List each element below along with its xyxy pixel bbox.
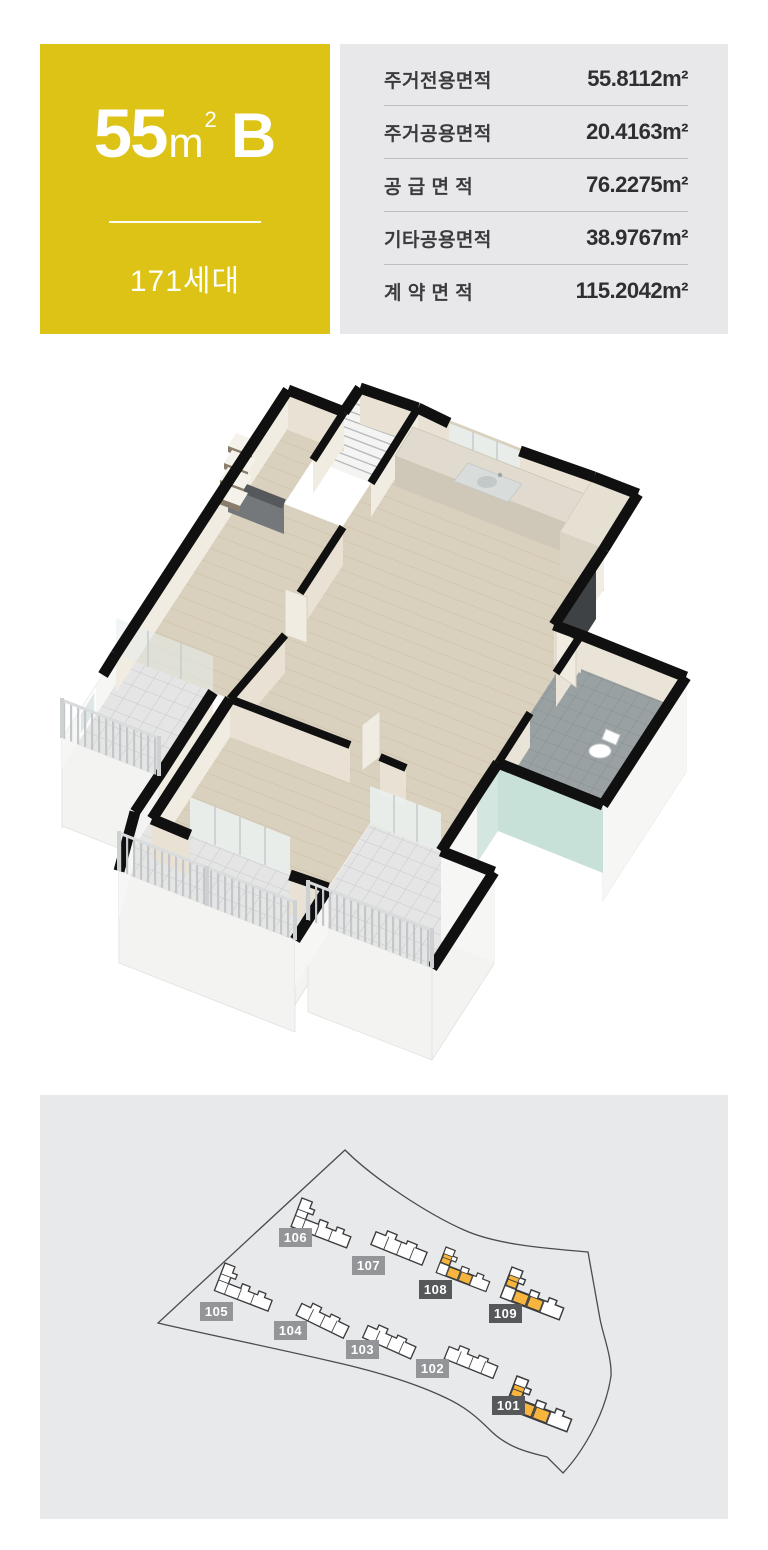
area-row-label: 주거공용면적: [384, 119, 492, 146]
area-row: 기타공용면적 38.9767m²: [384, 212, 688, 265]
building-label-102: 102: [416, 1359, 449, 1378]
area-row: 계 약 면 적 115.2042m²: [384, 265, 688, 317]
area-row-label: 주거전용면적: [384, 66, 492, 93]
area-table: 주거전용면적 55.8112m² 주거공용면적 20.4163m² 공 급 면 …: [340, 44, 728, 334]
unit-type-letter: B: [231, 101, 277, 171]
area-unit-sup: 2: [205, 107, 217, 132]
floor-plan-section: [0, 345, 768, 1090]
area-row-label: 계 약 면 적: [384, 278, 473, 305]
building-label-layer: 101102103104105106107108109: [40, 1095, 728, 1519]
area-unit: m: [169, 119, 204, 166]
area-row: 주거전용면적 55.8112m²: [384, 53, 688, 106]
badge-divider: [109, 221, 261, 223]
building-label-107: 107: [352, 1256, 385, 1275]
building-label-109: 109: [489, 1304, 522, 1323]
area-row-label: 공 급 면 적: [384, 172, 473, 199]
unit-header: 55m2B 171세대 주거전용면적 55.8112m² 주거공용면적 20.4…: [40, 44, 728, 334]
area-row-value: 55.8112m²: [587, 66, 688, 92]
area-row-value: 20.4163m²: [586, 119, 688, 145]
area-row: 공 급 면 적 76.2275m²: [384, 159, 688, 212]
building-label-106: 106: [279, 1228, 312, 1247]
bedroom-door: [285, 589, 307, 643]
area-row-value: 115.2042m²: [576, 278, 688, 304]
building-label-103: 103: [346, 1340, 379, 1359]
floor-plan-3d: [0, 345, 768, 1090]
area-row: 주거공용면적 20.4163m²: [384, 106, 688, 159]
unit-type-badge: 55m2B 171세대: [40, 44, 330, 334]
building-label-101: 101: [492, 1396, 525, 1415]
area-row-value: 38.9767m²: [586, 225, 688, 251]
unit-info-page: 55m2B 171세대 주거전용면적 55.8112m² 주거공용면적 20.4…: [0, 0, 768, 1550]
area-row-value: 76.2275m²: [586, 172, 688, 198]
building-label-105: 105: [200, 1302, 233, 1321]
household-count: 171세대: [40, 256, 330, 300]
site-map-section: 101102103104105106107108109: [40, 1095, 728, 1519]
building-label-108: 108: [419, 1280, 452, 1299]
area-number: 55: [94, 95, 167, 172]
unit-area-title: 55m2B: [40, 92, 330, 195]
area-row-label: 기타공용면적: [384, 225, 492, 252]
building-label-104: 104: [274, 1321, 307, 1340]
